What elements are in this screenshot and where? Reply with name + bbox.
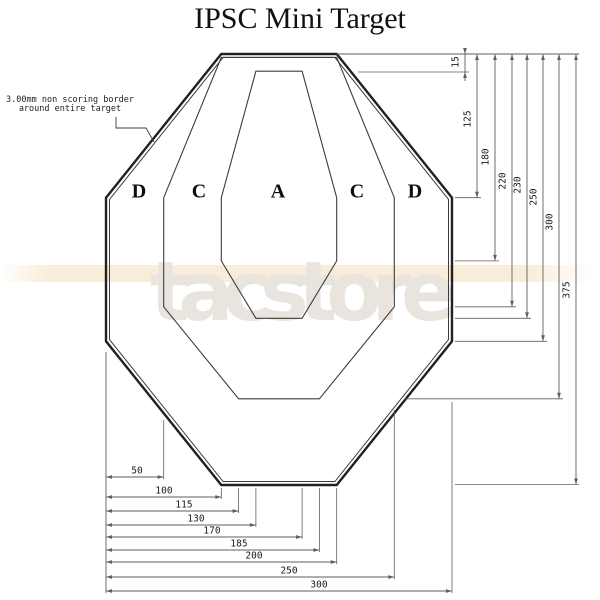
dim-arrowhead (541, 335, 545, 341)
note-leader-line (116, 117, 154, 142)
target-drawing-svg: DCACD15125180220230250300375501001151301… (0, 0, 600, 600)
dim-arrowhead (525, 312, 529, 318)
dim-arrowhead (525, 54, 529, 60)
dim-arrowhead (463, 72, 467, 78)
dim-label-bottom-130: 130 (187, 514, 204, 525)
dim-label-bottom-200: 200 (245, 551, 262, 562)
zone-letter-D: D (132, 181, 146, 203)
zone-letter-A: A (271, 181, 286, 203)
dim-arrowhead (446, 589, 452, 593)
c-zone-outline (164, 57, 395, 398)
dim-arrowhead (574, 479, 578, 485)
dim-arrowhead (463, 48, 467, 54)
zone-letter-C: C (350, 181, 364, 203)
dim-label-bottom-50: 50 (131, 466, 143, 477)
dim-arrowhead (106, 509, 112, 513)
dim-label-right-15: 15 (451, 56, 462, 67)
dim-arrowhead (106, 560, 112, 564)
dim-arrowhead (574, 54, 578, 60)
dim-arrowhead (106, 589, 112, 593)
dim-label-bottom-100: 100 (155, 486, 172, 497)
dim-label-right-230: 230 (513, 176, 524, 193)
dim-label-right-220: 220 (498, 172, 509, 189)
dim-arrowhead (557, 54, 561, 60)
dim-arrowhead (106, 495, 112, 499)
ipsc-target-diagram: tacstore IPSC Mini Target 3.00mm non sco… (0, 0, 600, 600)
dim-arrowhead (106, 548, 112, 552)
dim-arrowhead (510, 301, 514, 307)
dim-arrowhead (541, 54, 545, 60)
target-outer-border (106, 54, 452, 485)
dim-label-right-125: 125 (463, 110, 474, 127)
dim-arrowhead (475, 192, 479, 198)
dim-label-bottom-250: 250 (280, 566, 297, 577)
dim-arrowhead (313, 548, 319, 552)
dim-label-right-250: 250 (529, 188, 540, 205)
dim-arrowhead (331, 560, 337, 564)
dim-arrowhead (215, 495, 221, 499)
dim-arrowhead (493, 255, 497, 261)
dim-label-bottom-170: 170 (203, 526, 220, 537)
dim-arrowhead (106, 535, 112, 539)
dim-arrowhead (296, 535, 302, 539)
zone-letter-C: C (192, 181, 206, 203)
dim-label-right-180: 180 (481, 148, 492, 165)
dim-arrowhead (388, 575, 394, 579)
dim-arrowhead (250, 523, 256, 527)
dim-arrowhead (233, 509, 239, 513)
dim-arrowhead (158, 475, 164, 479)
dim-arrowhead (510, 54, 514, 60)
dim-label-right-375: 375 (562, 281, 573, 298)
dim-label-right-300: 300 (545, 213, 556, 230)
dim-label-bottom-115: 115 (175, 500, 192, 511)
dim-arrowhead (475, 54, 479, 60)
dim-arrowhead (557, 393, 561, 399)
zone-letter-D: D (408, 181, 422, 203)
dim-arrowhead (493, 54, 497, 60)
dim-arrowhead (106, 523, 112, 527)
dim-arrowhead (106, 475, 112, 479)
dim-arrowhead (106, 575, 112, 579)
dim-label-bottom-185: 185 (230, 539, 247, 550)
target-inner-border (110, 57, 449, 481)
dim-label-bottom-300: 300 (310, 580, 327, 591)
